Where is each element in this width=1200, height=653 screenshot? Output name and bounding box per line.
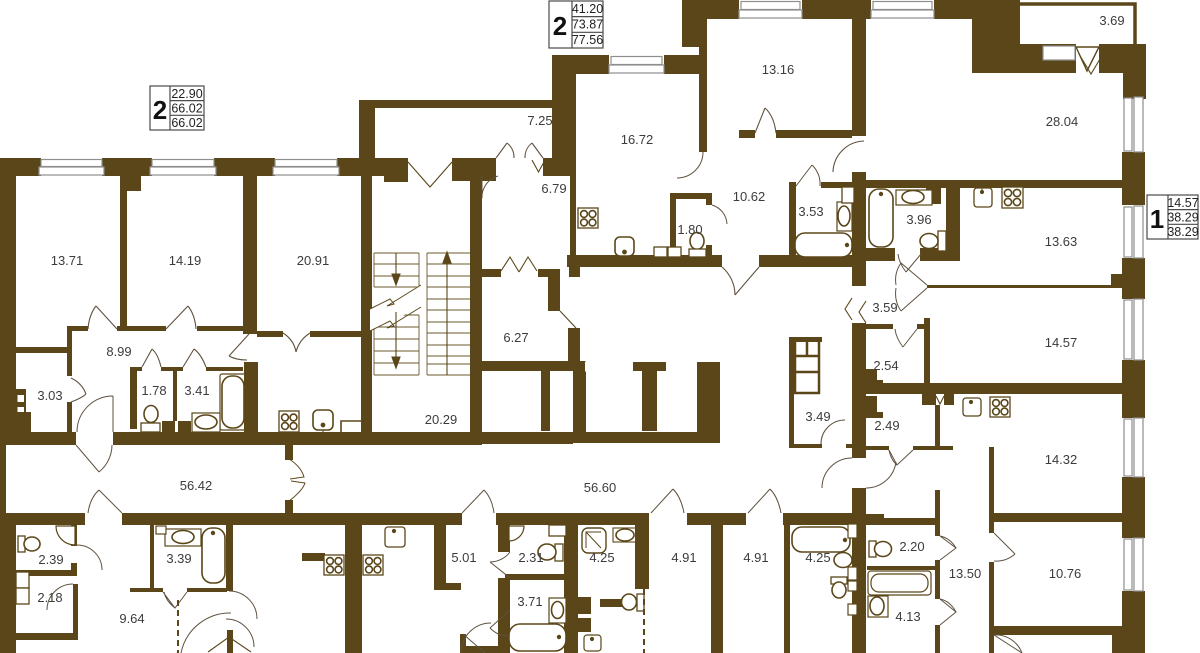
svg-text:38.29: 38.29 [1167,211,1198,225]
svg-text:41.20: 41.20 [572,2,603,16]
svg-text:3.39: 3.39 [166,551,191,566]
svg-text:1.80: 1.80 [677,222,702,237]
svg-text:3.49: 3.49 [805,409,830,424]
svg-text:56.42: 56.42 [180,478,213,493]
svg-text:4.91: 4.91 [743,550,768,565]
svg-text:66.02: 66.02 [171,102,202,116]
svg-text:13.71: 13.71 [51,253,84,268]
svg-text:3.41: 3.41 [184,383,209,398]
svg-text:73.87: 73.87 [572,18,603,32]
svg-text:1.78: 1.78 [141,383,166,398]
svg-text:28.04: 28.04 [1046,114,1079,129]
svg-text:14.19: 14.19 [169,253,202,268]
svg-text:4.25: 4.25 [589,550,614,565]
svg-text:14.57: 14.57 [1167,196,1198,210]
svg-text:4.25: 4.25 [805,550,830,565]
svg-text:56.60: 56.60 [584,480,617,495]
svg-text:14.32: 14.32 [1045,452,1078,467]
svg-text:2.49: 2.49 [874,418,899,433]
svg-text:2.18: 2.18 [37,590,62,605]
svg-text:3.59: 3.59 [872,300,897,315]
svg-text:66.02: 66.02 [171,116,202,130]
svg-text:2: 2 [153,95,167,125]
svg-text:20.29: 20.29 [425,412,458,427]
svg-text:3.03: 3.03 [37,388,62,403]
svg-text:16.72: 16.72 [621,132,654,147]
svg-text:9.64: 9.64 [119,611,144,626]
svg-text:13.50: 13.50 [949,566,982,581]
svg-text:14.57: 14.57 [1045,335,1078,350]
svg-text:1: 1 [1150,204,1164,234]
svg-text:2.54: 2.54 [873,358,898,373]
svg-text:2.39: 2.39 [38,552,63,567]
svg-text:6.79: 6.79 [541,181,566,196]
svg-text:2.31: 2.31 [518,550,543,565]
svg-text:8.99: 8.99 [106,344,131,359]
svg-text:13.16: 13.16 [762,62,795,77]
svg-text:77.56: 77.56 [572,33,603,47]
svg-text:10.62: 10.62 [733,189,766,204]
svg-text:13.63: 13.63 [1045,234,1078,249]
svg-text:20.91: 20.91 [297,253,330,268]
svg-text:4.91: 4.91 [671,550,696,565]
svg-text:3.71: 3.71 [517,594,542,609]
svg-text:38.29: 38.29 [1167,225,1198,239]
svg-text:22.90: 22.90 [171,87,202,101]
svg-text:7.25: 7.25 [527,113,552,128]
svg-text:10.76: 10.76 [1049,566,1082,581]
svg-text:5.01: 5.01 [451,550,476,565]
svg-text:2.20: 2.20 [899,539,924,554]
svg-text:3.53: 3.53 [798,204,823,219]
svg-text:6.27: 6.27 [503,330,528,345]
svg-text:3.69: 3.69 [1099,13,1124,28]
svg-text:2: 2 [553,11,567,41]
svg-text:3.96: 3.96 [906,212,931,227]
svg-text:4.13: 4.13 [895,609,920,624]
